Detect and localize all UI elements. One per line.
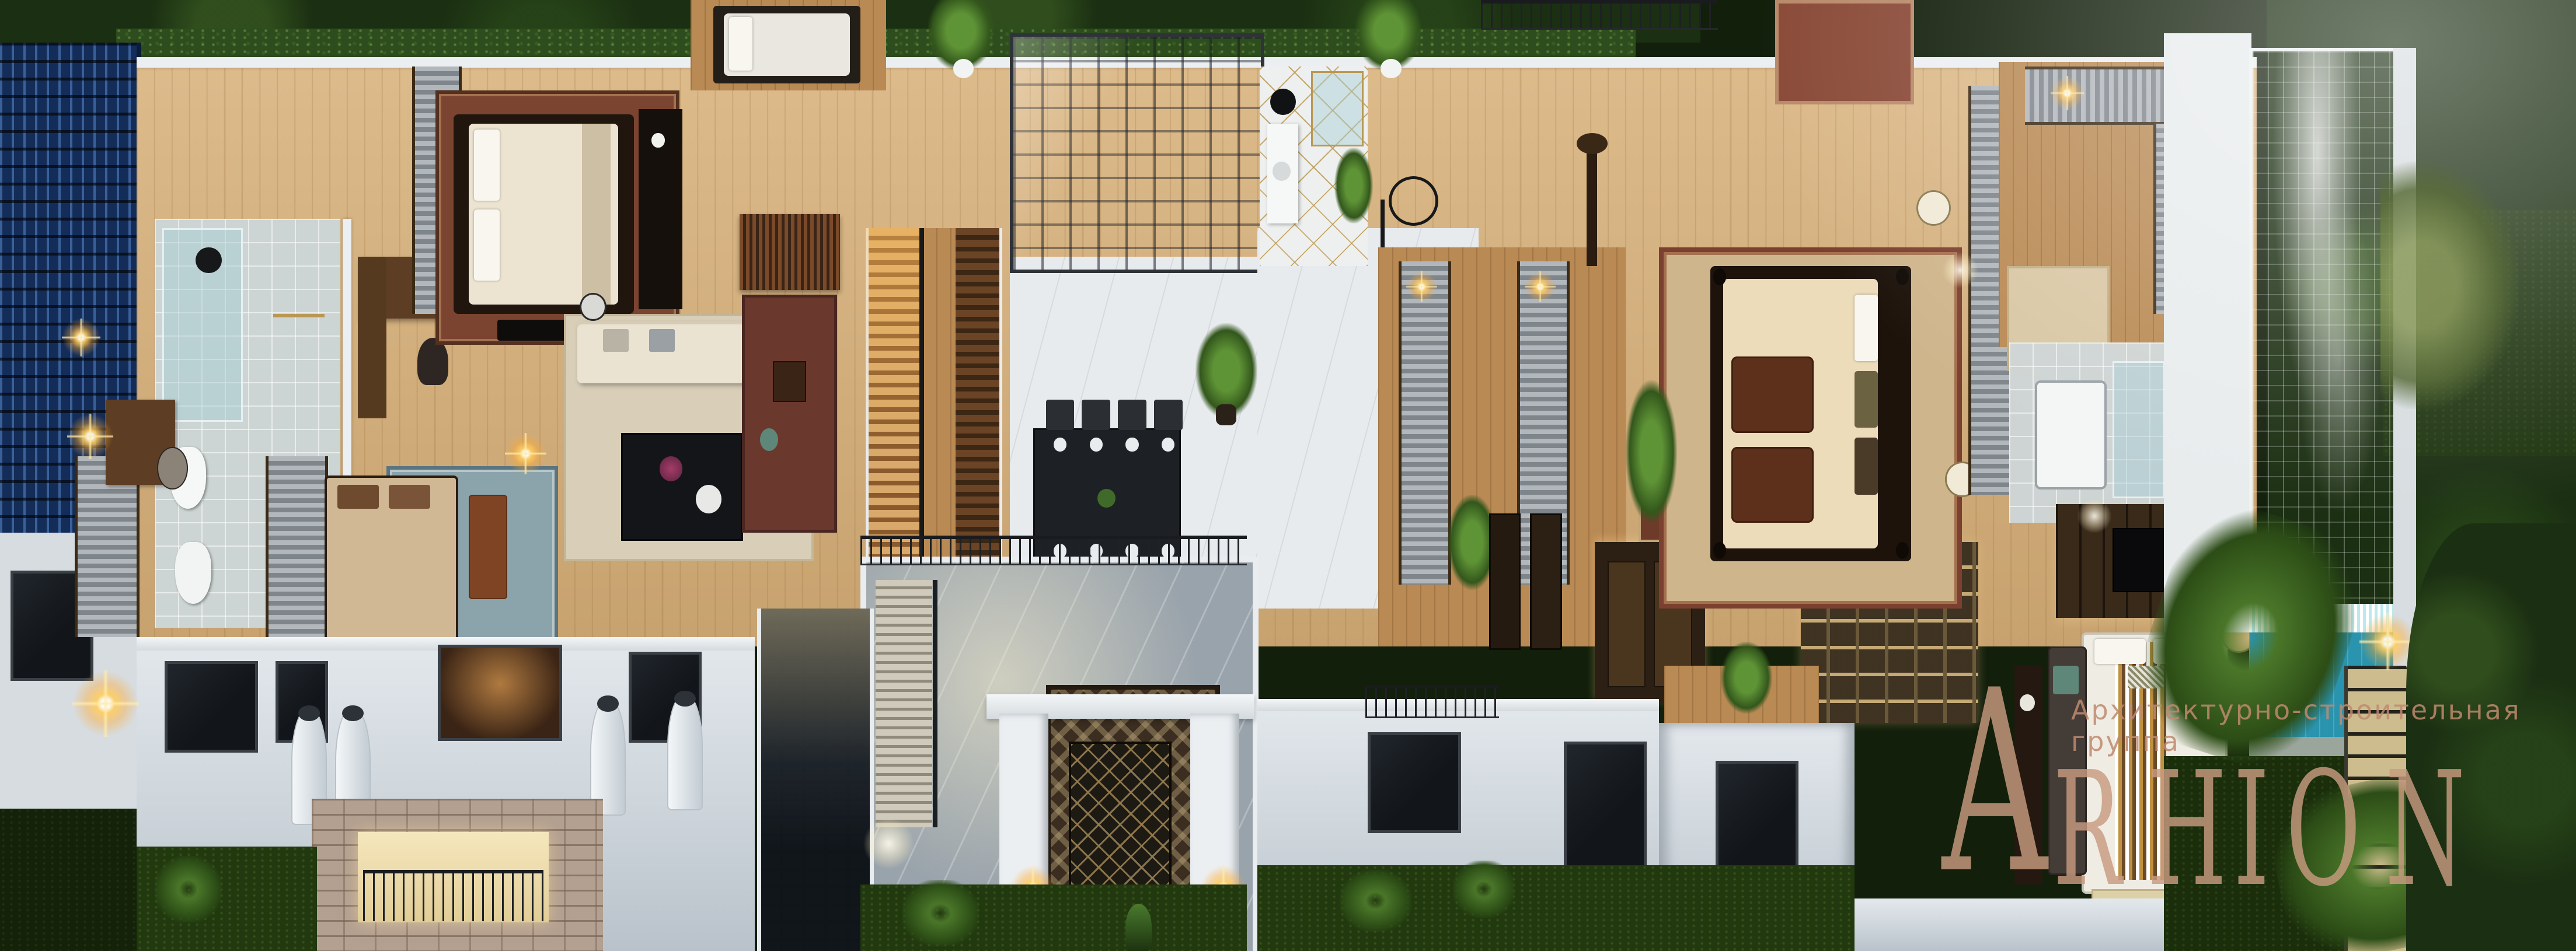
entrance-diamond-door [1069, 742, 1172, 908]
dining-plant-pot [1216, 404, 1236, 425]
leather-ottoman [1731, 447, 1814, 523]
round-black-mirror [1270, 89, 1296, 116]
shower-right [2113, 361, 2165, 498]
closet-right-downlight [2051, 76, 2084, 110]
wall-sconce-glow [67, 414, 113, 459]
leather-bench [469, 495, 507, 599]
watermark-letter-O: O [2286, 751, 2361, 908]
sofa-cushion [649, 329, 675, 352]
gallery-front-railing [1481, 0, 1718, 30]
watermark-letter-N: N [2385, 751, 2465, 908]
flower-decor [660, 456, 683, 481]
fan-palm [2380, 162, 2519, 409]
pillow [474, 209, 500, 281]
closet-downlight [1406, 271, 1437, 303]
place-setting [1054, 438, 1066, 452]
watermark-letter-I: I [2233, 751, 2270, 908]
desk-chair [417, 338, 448, 386]
pillow-brown [389, 485, 430, 509]
balcony-rug-top [1775, 0, 1914, 104]
closet-downlight [1525, 271, 1556, 303]
conifer-tree [1125, 904, 1151, 951]
atrium-balustrade [860, 536, 1247, 565]
vase-decor [651, 133, 664, 147]
shower-head-icon [196, 247, 221, 273]
chimney-stack [667, 694, 703, 811]
study-maroon-rug [742, 295, 837, 533]
brick-bay-iron-railing [363, 870, 543, 921]
tray-decor [696, 485, 721, 513]
foyer-stair-scroll-rail [933, 580, 938, 827]
wardrobe-row-guest-b [266, 456, 328, 637]
gold-towel-rail [273, 314, 325, 318]
art-panel [1489, 513, 1521, 650]
shrub [1453, 861, 1515, 918]
chimney-stack [590, 699, 626, 816]
study-bookshelf [740, 214, 840, 290]
pillow-brown [1855, 438, 1878, 495]
vanity-chair [157, 447, 188, 489]
watermark-letter-H: H [2147, 751, 2227, 908]
pillow [2094, 639, 2146, 663]
study-vase [760, 428, 778, 451]
planter-pot-a [953, 59, 974, 78]
dining-chair [1046, 400, 1075, 430]
bathroom-plant [1334, 148, 1373, 223]
leather-ottoman [1731, 356, 1814, 432]
stair-window-tall [757, 609, 873, 951]
coat-stand-top [1577, 133, 1608, 154]
bathtub [2035, 380, 2107, 490]
art-panel [1530, 513, 1562, 650]
bed-post [1713, 542, 1726, 559]
shrub [902, 880, 979, 946]
cabinet-door [1608, 561, 1646, 687]
bed-post [1713, 268, 1726, 285]
terrace-potted-tree [1721, 642, 1772, 713]
arc-floor-lamp [1389, 176, 1438, 226]
pool-edge-glint [1942, 252, 1978, 288]
dining-chair [1118, 400, 1146, 430]
watermark-logo: A R H I O N [1942, 690, 2496, 908]
watermark-letter-R: R [2053, 751, 2122, 908]
pillow-olive [1855, 371, 1878, 428]
planter-pot-b [1381, 59, 1401, 78]
watermark-letter-A: A [1942, 658, 2047, 908]
architectural-render-canvas: Архитектурно-строительная группа A R H I… [0, 0, 2576, 951]
bay-window [1716, 761, 1798, 881]
bed-runner [582, 124, 611, 305]
coffee-table-black [621, 433, 743, 541]
facade-window-lit [438, 645, 562, 741]
dressing-desk-return [358, 257, 386, 418]
dining-glass-roof [1010, 33, 1264, 273]
facade-window-tall [1564, 742, 1647, 871]
bed-post [1896, 268, 1909, 285]
facade-window [1368, 732, 1461, 833]
stair-bottom-glow [72, 670, 140, 737]
bidet [175, 542, 211, 604]
mid-balcony-railing [1365, 685, 1499, 719]
place-setting [1090, 438, 1103, 452]
shower-gold-frame [1311, 71, 1364, 146]
pillow [729, 17, 752, 70]
dining-chair [1154, 400, 1183, 430]
facade-window [165, 661, 258, 753]
vanity-sink [1273, 162, 1291, 181]
shrub [1340, 870, 1412, 932]
shrub [155, 856, 222, 922]
pillow-brown [337, 485, 379, 509]
pillow [474, 130, 500, 201]
pillow [1855, 295, 1878, 361]
bedroom-plant [1626, 380, 1677, 523]
gallery-glint [863, 818, 914, 869]
floor-lamp [580, 293, 606, 321]
dining-chair [1082, 400, 1110, 430]
centerpiece-greenery [1097, 489, 1116, 508]
tv-wall-downlight [2076, 499, 2113, 533]
closet-rail-a [1399, 261, 1451, 585]
place-setting [1125, 438, 1138, 452]
foyer-stair-below [876, 580, 932, 827]
wall-sconce-glow [62, 319, 100, 356]
study-side-table [773, 361, 806, 401]
coat-stand [1587, 143, 1597, 267]
table-lamp-glow [505, 433, 546, 475]
sofa-cushion [603, 329, 629, 352]
